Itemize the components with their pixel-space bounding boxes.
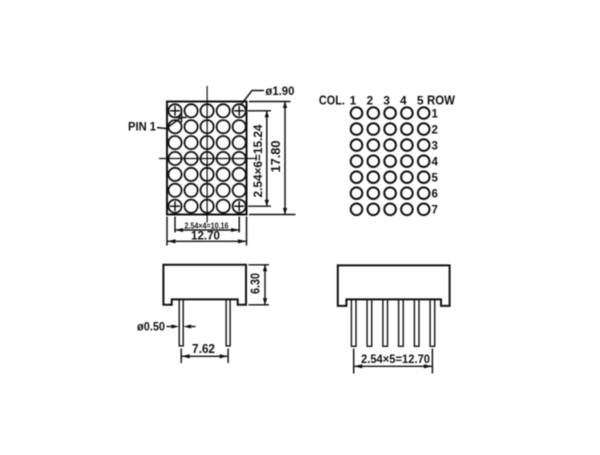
svg-text:1: 1 [350,94,357,108]
svg-text:3: 3 [383,94,390,108]
svg-text:6.30: 6.30 [249,273,263,294]
svg-text:2.54×5=12.70: 2.54×5=12.70 [361,352,430,366]
svg-text:6: 6 [432,189,438,201]
svg-text:5: 5 [432,173,439,185]
svg-text:2.54×6=15.24: 2.54×6=15.24 [251,124,265,197]
svg-text:12.70: 12.70 [191,229,220,243]
svg-text:ø1.90: ø1.90 [265,84,294,98]
svg-text:17.80: 17.80 [269,140,283,172]
svg-text:ø0.50: ø0.50 [137,320,165,334]
svg-text:COL.: COL. [319,94,345,108]
svg-text:7.62: 7.62 [192,342,215,356]
svg-text:2: 2 [366,94,373,108]
svg-text:7: 7 [432,205,438,217]
svg-text:2: 2 [432,124,438,136]
svg-text:ROW: ROW [427,94,455,108]
svg-text:5: 5 [417,94,424,108]
svg-text:1: 1 [432,108,439,120]
svg-text:PIN 1: PIN 1 [128,120,156,134]
svg-text:3: 3 [432,140,438,152]
svg-text:4: 4 [432,156,439,168]
svg-text:4: 4 [400,94,407,108]
